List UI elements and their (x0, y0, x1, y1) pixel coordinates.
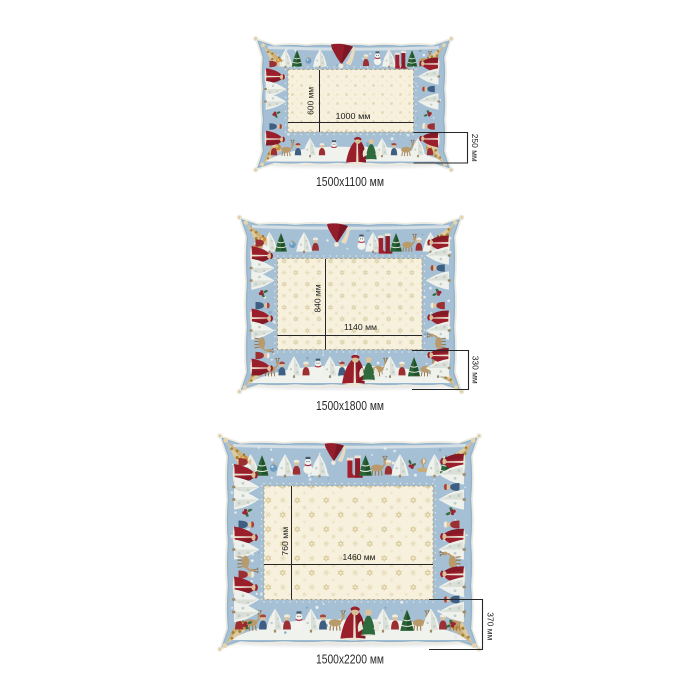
svg-text:1140 мм: 1140 мм (344, 322, 377, 332)
svg-text:840 мм: 840 мм (313, 284, 323, 312)
svg-text:370 мм: 370 мм (486, 612, 496, 640)
svg-text:1500х2200 мм: 1500х2200 мм (316, 653, 384, 667)
svg-text:1460 мм: 1460 мм (343, 552, 376, 562)
svg-text:1500х1100 мм: 1500х1100 мм (316, 175, 384, 189)
svg-text:1000 мм: 1000 мм (336, 111, 371, 121)
svg-text:330 мм: 330 мм (471, 356, 481, 384)
svg-text:250 мм: 250 мм (470, 134, 480, 162)
svg-text:600 мм: 600 мм (306, 87, 316, 115)
svg-text:760 мм: 760 мм (280, 526, 290, 555)
svg-text:1500х1800 мм: 1500х1800 мм (316, 399, 384, 413)
